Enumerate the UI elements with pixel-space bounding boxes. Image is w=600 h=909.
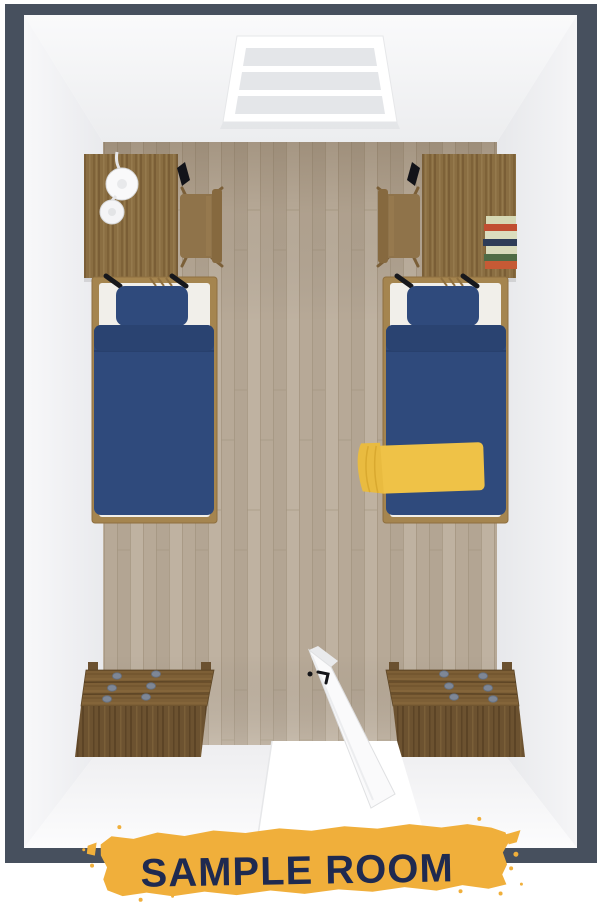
room-image: SAMPLE ROOM — [0, 0, 600, 909]
pillow — [407, 286, 479, 326]
desk-right — [407, 154, 517, 282]
duvet — [94, 325, 214, 515]
book — [485, 261, 517, 269]
dresser-left — [75, 662, 214, 757]
duvet-top-fold — [94, 325, 214, 351]
window-pane — [243, 48, 377, 66]
chair-rail — [389, 196, 394, 256]
chair-backrest — [378, 189, 388, 263]
window-pane — [239, 72, 381, 90]
book — [484, 224, 517, 231]
window — [220, 36, 400, 129]
door-handle-icon — [308, 672, 313, 677]
book-stack-icon — [483, 216, 517, 269]
chair-backrest — [212, 189, 222, 263]
chair-left — [180, 188, 222, 266]
chair-right — [378, 188, 420, 266]
chair-rail — [206, 196, 211, 256]
dresser-front-face — [75, 706, 207, 757]
desk-left — [84, 152, 190, 282]
sample-room-figure: SAMPLE ROOM — [0, 0, 600, 909]
bed-left — [92, 276, 217, 523]
dresser-right — [386, 662, 525, 757]
book — [486, 246, 517, 254]
desk-edge — [176, 154, 178, 278]
desk-edge — [422, 154, 424, 278]
duvet-top-fold — [386, 325, 506, 351]
book — [483, 239, 517, 246]
yellow-blanket — [357, 439, 485, 494]
window-pane — [235, 96, 385, 114]
banner-label: SAMPLE ROOM — [140, 846, 454, 895]
book — [484, 254, 517, 261]
pillow — [116, 286, 188, 326]
book — [485, 231, 517, 239]
window-shadow — [220, 122, 400, 129]
book — [486, 216, 516, 224]
dresser-front-face — [393, 706, 525, 757]
